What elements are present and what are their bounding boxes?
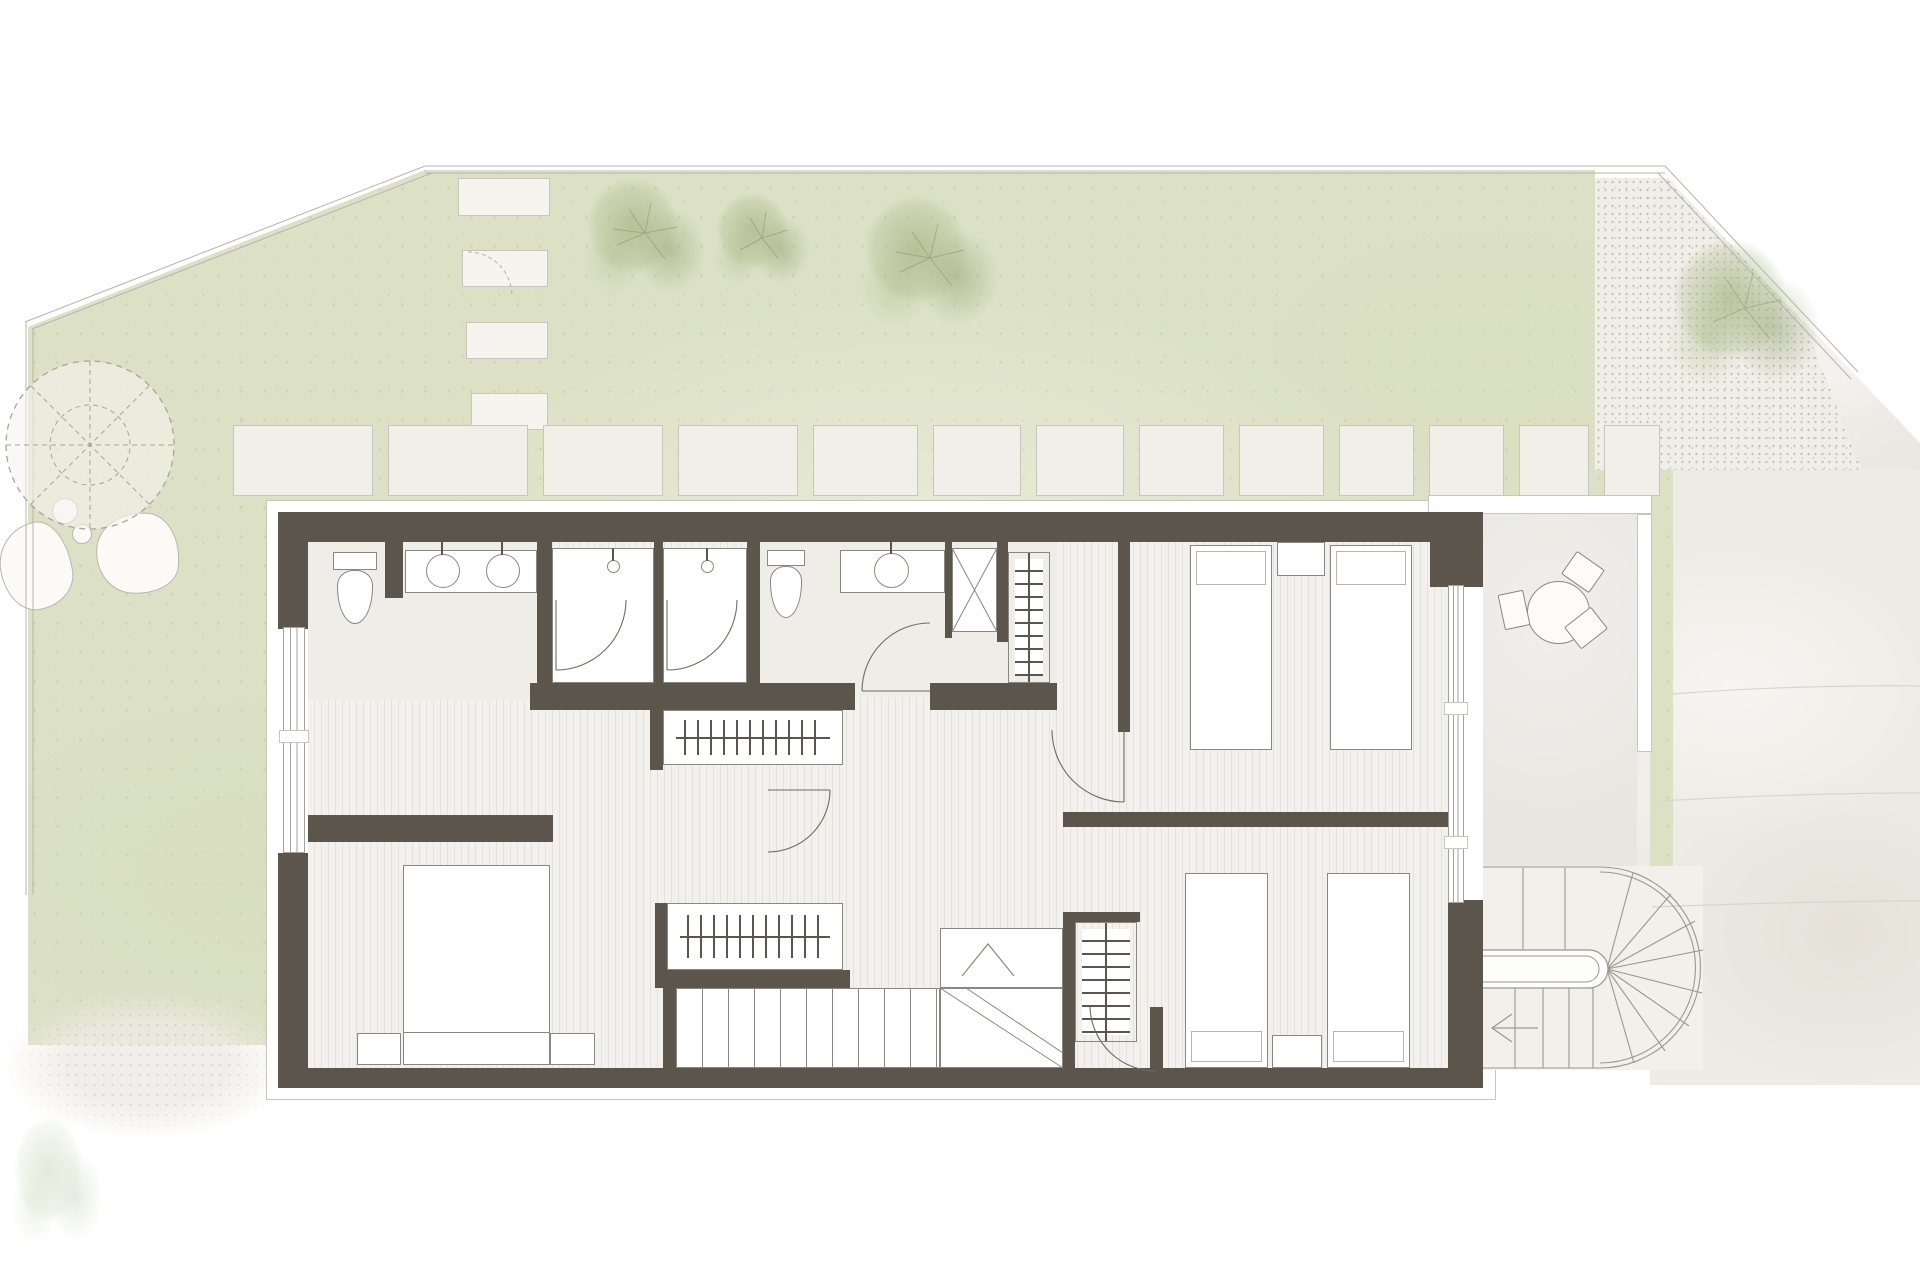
stair-winder-line xyxy=(940,988,1063,1068)
stair-direction-arrow xyxy=(962,944,1014,976)
tree-branches xyxy=(896,224,964,286)
path-kerb xyxy=(1652,901,1920,907)
site-boundary xyxy=(25,166,425,322)
site-boundary xyxy=(1665,166,1858,372)
door-swing-master xyxy=(768,790,830,852)
stair-winder-line xyxy=(966,988,1063,1053)
garden-gate-swing xyxy=(468,252,512,296)
site-boundary xyxy=(32,173,432,329)
site-boundary xyxy=(1658,173,1851,379)
plan-linework xyxy=(0,0,1920,1280)
door-swing-shower1 xyxy=(556,600,626,670)
shower-tray-x xyxy=(952,548,997,632)
door-swing-bath2 xyxy=(862,623,930,691)
tree-branches xyxy=(613,203,677,259)
tree-branches xyxy=(740,212,788,258)
tree-branches xyxy=(1713,272,1781,338)
path-kerb xyxy=(1673,686,1920,694)
spiral-stair-tread xyxy=(1523,868,1565,951)
path-kerb xyxy=(1660,793,1920,801)
door-swing-bedroom3 xyxy=(1090,1007,1156,1071)
door-swing-shower2 xyxy=(667,600,737,670)
spiral-stair-tread xyxy=(1515,985,1593,1068)
spiral-stair-tread xyxy=(1607,873,1703,1063)
floor-plan-canvas xyxy=(0,0,1920,1280)
door-swing-bedroom2 xyxy=(1052,730,1124,802)
